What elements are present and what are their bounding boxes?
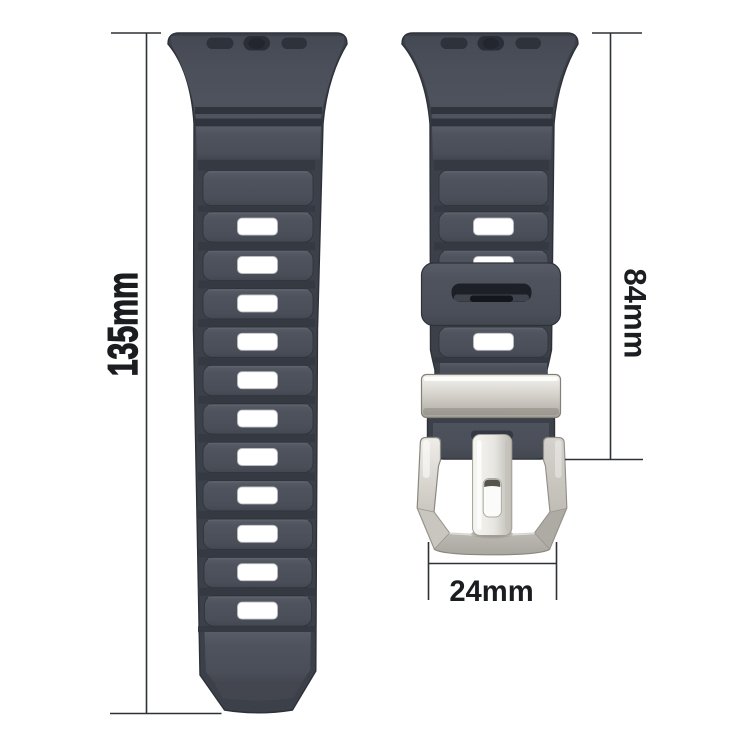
svg-text:24mm: 24mm bbox=[449, 576, 533, 608]
svg-text:135mm: 135mm bbox=[99, 272, 146, 376]
svg-text:84mm: 84mm bbox=[617, 268, 652, 358]
